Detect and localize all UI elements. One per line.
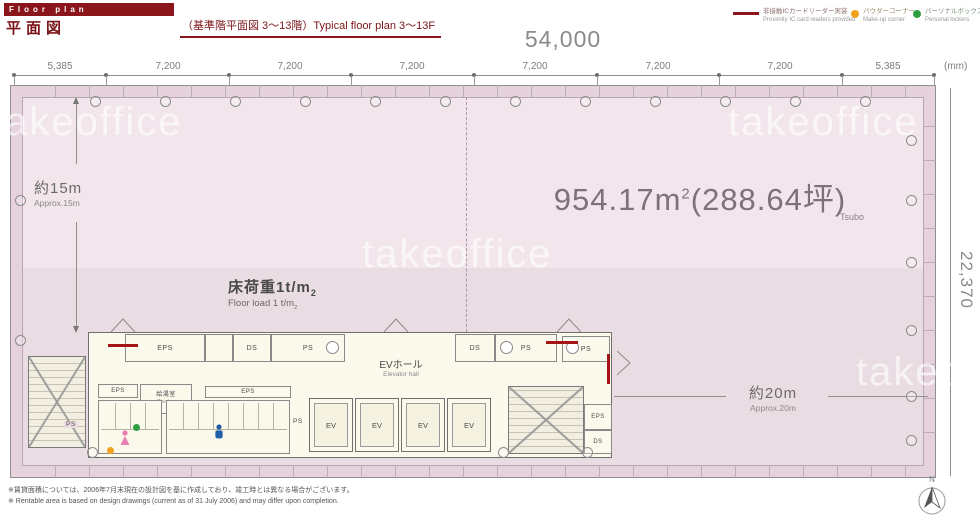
personal-lockers-marker-icon	[133, 424, 140, 431]
toilet-stalls	[101, 403, 159, 430]
cardreader-mark	[607, 354, 610, 384]
segment-dim: 7,200	[750, 61, 810, 72]
room-eps: EPS	[98, 384, 138, 398]
column-marker	[300, 96, 311, 107]
column-marker	[906, 391, 917, 402]
wall-hatch-right	[924, 97, 936, 466]
room-ps-label: PS	[293, 418, 303, 425]
room-toilet-men	[166, 400, 290, 454]
dim-tick-leader	[14, 76, 15, 86]
column-marker	[906, 135, 917, 146]
legend-label-en: Personal lockers	[925, 16, 980, 24]
elevator-shaft: EV	[355, 398, 399, 452]
toilet-stalls	[169, 403, 287, 430]
north-compass-icon: N	[910, 472, 954, 518]
watermark: takeoffice	[362, 232, 553, 277]
room-eps: EPS	[125, 334, 205, 362]
segment-dim: 7,200	[505, 61, 565, 72]
column-marker	[440, 96, 451, 107]
column-marker	[15, 335, 26, 346]
depth-left-dimension: 約15m Approx.15m	[34, 177, 82, 208]
door-swing-icon	[383, 318, 409, 332]
column-marker	[90, 96, 101, 107]
stairwell-left	[28, 356, 86, 448]
elevator-hall-label: EVホール Elevator hall	[345, 356, 457, 378]
legend-label-jp: パーソナルボックス	[925, 8, 980, 16]
depth20-line-left	[614, 396, 726, 397]
page-subtitle: （基準階平面図 3〜13階）Typical floor plan 3〜13F	[180, 17, 441, 38]
dim-tick-leader	[934, 76, 935, 86]
elevator-shaft: EV	[309, 398, 353, 452]
legend-item-cardreader: 非接触ICカードリーダー実装 Proximity IC card readers…	[733, 8, 855, 24]
legend-item-powder-corner: パウダーコーナー Make-up corner	[851, 8, 915, 24]
woman-icon	[119, 430, 131, 447]
column-marker	[650, 96, 661, 107]
column-marker	[790, 96, 801, 107]
watermark: takeoffice	[728, 100, 919, 145]
footnote-jp: ※賃貸面積については、2006年7月末現在の設計図を基に作成しており、竣工時とは…	[8, 485, 354, 495]
unit-label: (mm)	[944, 61, 967, 72]
floor-plan-page: Floor plan 平面図 （基準階平面図 3〜13階）Typical flo…	[0, 0, 980, 519]
wall-hatch-top	[22, 85, 924, 97]
header-banner: Floor plan	[4, 3, 174, 16]
column-circle	[326, 341, 339, 354]
tsubo-label: Tsubo	[840, 212, 864, 222]
room-eps: EPS	[584, 404, 612, 430]
column-circle	[500, 341, 513, 354]
arrow-up-icon	[73, 97, 79, 104]
room-blank	[205, 334, 233, 362]
watermark: takeoffice	[856, 350, 980, 395]
man-icon	[213, 424, 225, 442]
personal-lockers-dot-icon	[913, 10, 921, 18]
column-marker	[15, 195, 26, 206]
door-swing-icon	[110, 318, 136, 332]
column-marker	[582, 447, 593, 458]
powder-corner-dot-icon	[851, 10, 859, 18]
compass-n-label: N	[929, 475, 935, 484]
dim-tick-leader	[351, 76, 352, 86]
segment-dim: 7,200	[260, 61, 320, 72]
legend-label-en: Proximity IC card readers provided	[763, 16, 855, 24]
legend-label-jp: 非接触ICカードリーダー実装	[763, 8, 855, 16]
arrow-down-icon	[73, 326, 79, 333]
dim-tick-leader	[597, 76, 598, 86]
column-marker	[906, 325, 917, 336]
dim-tick-leader	[229, 76, 230, 86]
depth-right-dimension: 約20m Approx.20m	[718, 382, 828, 413]
cardreader-line-swatch	[733, 12, 759, 15]
column-grid-dashed-line	[466, 97, 467, 332]
column-marker	[906, 195, 917, 206]
cardreader-mark	[546, 341, 578, 344]
column-marker	[906, 257, 917, 268]
dim-tick-leader	[719, 76, 720, 86]
column-marker	[498, 447, 509, 458]
legend-item-personal-lockers: パーソナルボックス Personal lockers	[913, 8, 980, 24]
column-marker	[860, 96, 871, 107]
right-dimension-line	[950, 88, 951, 476]
depth15-line-lower	[76, 222, 77, 330]
column-marker	[720, 96, 731, 107]
column-marker	[510, 96, 521, 107]
footnote-en: ※ Rentable area is based on design drawi…	[8, 497, 339, 505]
cardreader-mark	[108, 344, 138, 347]
legend-label-en: Make-up corner	[863, 16, 915, 24]
legend-label-jp: パウダーコーナー	[863, 8, 915, 16]
elevator-shaft: EV	[447, 398, 491, 452]
column-marker	[580, 96, 591, 107]
overall-height-dimension: 22,370	[956, 245, 976, 315]
segment-dim: 5,385	[858, 61, 918, 72]
dim-tick-leader	[106, 76, 107, 86]
room-eps: EPS	[205, 386, 291, 398]
stairwell-right	[508, 386, 584, 454]
room-ds: DS	[455, 334, 495, 362]
overall-width-dimension: 54,000	[498, 26, 628, 53]
powder-corner-marker-icon	[107, 447, 114, 454]
room-ps-label: PS	[64, 421, 78, 428]
watermark: takeoffice	[0, 100, 183, 145]
dim-tick-leader	[842, 76, 843, 86]
door-swing-icon	[617, 350, 631, 376]
door-swing-icon	[556, 318, 582, 332]
segment-dim: 5,385	[30, 61, 90, 72]
room-ds: DS	[233, 334, 271, 362]
segment-dim: 7,200	[138, 61, 198, 72]
column-marker	[160, 96, 171, 107]
column-marker	[906, 435, 917, 446]
page-title: 平面図	[6, 17, 66, 38]
floor-load-text: 床荷重1t/m2 Floor load 1 t/m2	[228, 276, 317, 311]
segment-dim: 7,200	[628, 61, 688, 72]
wall-hatch-bottom	[22, 466, 924, 478]
depth15-line-upper	[76, 100, 77, 164]
dim-tick-leader	[474, 76, 475, 86]
elevator-shaft: EV	[401, 398, 445, 452]
column-marker	[370, 96, 381, 107]
column-marker	[87, 447, 98, 458]
segment-dim: 7,200	[382, 61, 442, 72]
column-marker	[230, 96, 241, 107]
